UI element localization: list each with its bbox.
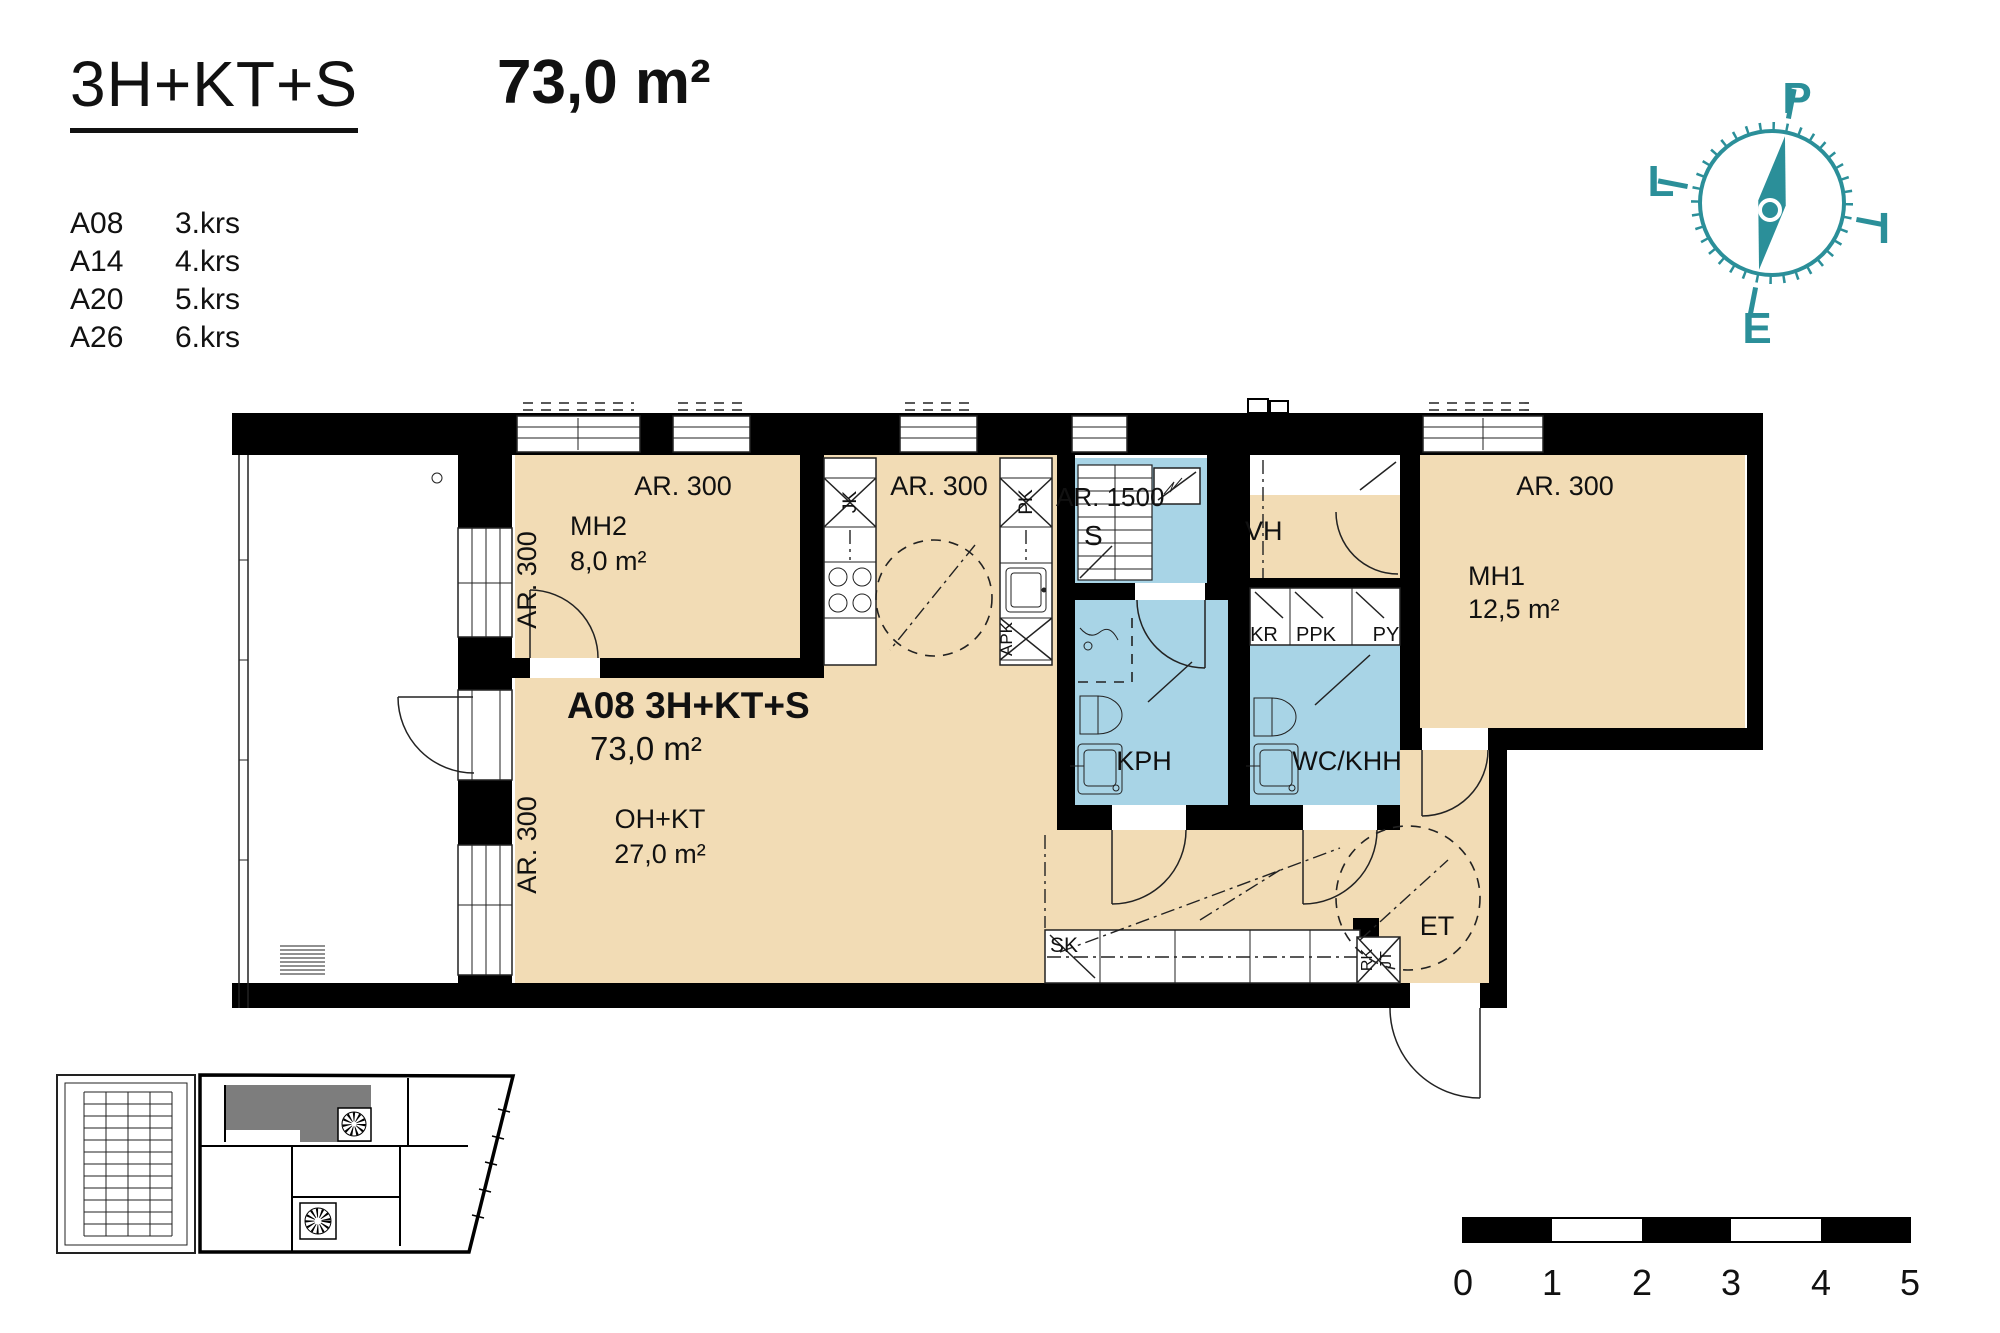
window [900, 403, 977, 452]
label-jk: JK [840, 491, 861, 514]
floorplan-page: 3H+KT+S 73,0 m² A08 3.krs A14 4.krs A20 … [0, 0, 2000, 1333]
compass: P I E L [1636, 67, 1908, 353]
compass-needle [1745, 134, 1798, 273]
scale-bar: 0 1 2 3 4 5 [1453, 1218, 1920, 1303]
room-area-ohkt: 27,0 m² [614, 839, 706, 869]
label-jt: JT [1378, 951, 1395, 969]
window [1423, 403, 1543, 452]
label-kr: KR [1250, 624, 1278, 646]
room-label-vh: VH [1245, 516, 1283, 546]
room-label-kph: KPH [1116, 746, 1172, 776]
room-label-wckhh: WC/KHH [1292, 746, 1402, 776]
window [673, 403, 750, 452]
label-apk: APK [997, 621, 1016, 656]
label-rk: RK [1359, 949, 1376, 972]
label-ppk: PPK [1296, 624, 1337, 646]
compass-south-label: E [1742, 304, 1771, 353]
balcony-area [252, 455, 458, 983]
scale-tick: 5 [1900, 1262, 1920, 1303]
room-label-sauna: S [1084, 520, 1103, 551]
label-sk: SK [1050, 934, 1078, 957]
label-ar300: AR. 300 [890, 471, 988, 501]
key-plan [57, 1075, 513, 1253]
label-ar300: AR. 300 [1516, 471, 1614, 501]
scale-tick: 3 [1721, 1262, 1741, 1303]
apartment-area: 73,0 m² [590, 730, 702, 767]
label-ar300-vertical: AR. 300 [512, 796, 542, 894]
entry-door [1390, 1008, 1480, 1098]
label-ar1500: AR. 1500 [1056, 482, 1164, 512]
vent-detail [1248, 399, 1288, 413]
scale-tick: 0 [1453, 1262, 1473, 1303]
room-label-mh1: MH1 [1468, 561, 1525, 591]
sk-closet [1045, 930, 1360, 983]
scale-tick: 1 [1542, 1262, 1562, 1303]
scale-tick: 2 [1632, 1262, 1652, 1303]
label-pk: PK [1016, 489, 1037, 515]
balcony-window [458, 845, 512, 975]
compass-west-label: L [1648, 157, 1675, 206]
room-label-et: ET [1420, 911, 1455, 941]
label-py: PY [1373, 624, 1400, 646]
label-ar300: AR. 300 [634, 471, 732, 501]
compass-north-label: P [1782, 74, 1811, 123]
room-area-mh1: 12,5 m² [1468, 594, 1560, 624]
room-label-mh2: MH2 [570, 511, 627, 541]
floorplan-drawing: MH2 8,0 m² MH1 12,5 m² OH+KT 27,0 m² KPH… [0, 0, 2000, 1333]
apartment-title: A08 3H+KT+S [567, 685, 810, 726]
window [517, 403, 640, 452]
scale-tick: 4 [1811, 1262, 1831, 1303]
window [1072, 416, 1127, 452]
balcony-window [458, 528, 512, 637]
room-label-ohkt: OH+KT [615, 804, 706, 834]
room-area-mh2: 8,0 m² [570, 546, 647, 576]
room-et [1400, 750, 1489, 830]
label-ar300-vertical: AR. 300 [512, 531, 542, 629]
compass-east-label: I [1878, 204, 1890, 253]
